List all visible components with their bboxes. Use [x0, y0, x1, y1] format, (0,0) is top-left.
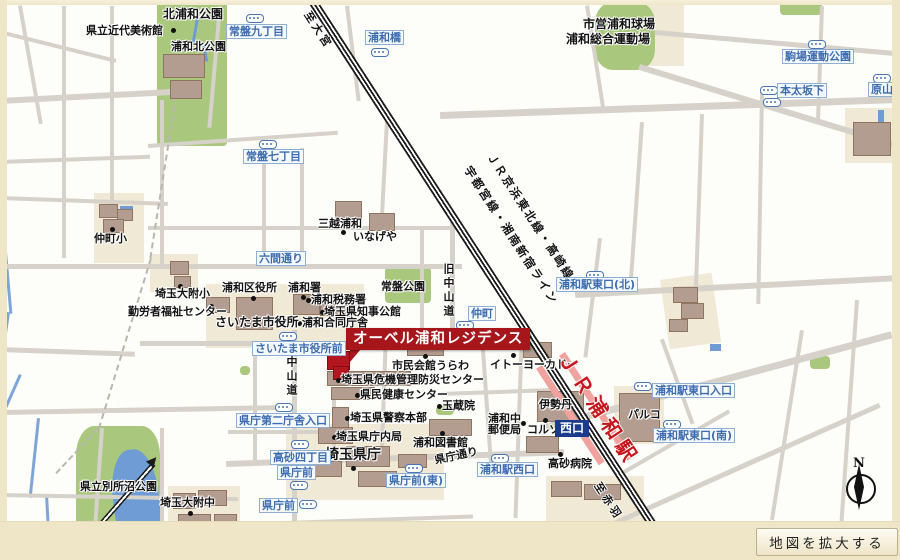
- bus-stop-icon: [275, 403, 293, 412]
- road-segment: [253, 344, 257, 462]
- place-label: 埼玉大附中: [160, 497, 215, 509]
- place-label: 高砂病院: [548, 458, 592, 470]
- bus-stop-icon: [634, 382, 652, 391]
- bus-stop-label: 常盤七丁目: [243, 149, 304, 164]
- bus-stop-icon: [259, 140, 277, 149]
- bus-stop-icon-dots: [293, 484, 295, 486]
- bus-stop-icon-dots: [637, 385, 639, 387]
- road-segment: [62, 6, 66, 258]
- bus-stop-icon: [291, 440, 309, 449]
- compass-icon: N: [840, 456, 880, 518]
- bus-stop-label: 浦和橋: [365, 30, 404, 45]
- building: [669, 319, 688, 332]
- bus-stop-label: 浦和駅東口(北): [556, 277, 638, 292]
- building: [681, 303, 704, 319]
- bus-stop-icon-dots: [302, 503, 304, 505]
- park-area: [240, 366, 250, 375]
- place-label: 常盤公園: [381, 281, 425, 293]
- road-segment: [655, 30, 900, 56]
- bus-stop-icon-dots: [811, 43, 813, 45]
- bus-stop-icon: [405, 464, 423, 473]
- place-label: 玉蔵院: [442, 400, 475, 412]
- road-segment: [583, 238, 602, 358]
- place-label: 三越浦和: [318, 218, 362, 230]
- bus-stop-icon: [371, 48, 389, 57]
- bus-stop-icon: [299, 500, 317, 509]
- bus-stop-icon: [763, 98, 781, 107]
- place-label: いなげや: [353, 231, 397, 243]
- road-name-label: 中山道: [283, 356, 299, 398]
- place-label: 仲町小: [94, 233, 127, 245]
- road-segment: [816, 6, 824, 124]
- bus-stop-label: さいたま市役所前: [252, 341, 346, 356]
- place-label: 浦和区役所: [222, 282, 277, 294]
- road-segment: [660, 339, 695, 425]
- river-line: [29, 418, 40, 498]
- water-area: [710, 344, 721, 351]
- bus-stop-icon-dots: [278, 406, 280, 408]
- poi-dot: [251, 296, 256, 301]
- place-label: 伊勢丹: [539, 399, 572, 411]
- bus-stop-icon-dots: [459, 324, 461, 326]
- map-canvas: ＪＲ京浜東北線・高崎線・ 宇都宮線・湘南新宿ライン ＪＲ浦和駅 西口 オーベル浦…: [0, 0, 900, 560]
- road-segment: [0, 155, 150, 164]
- building: [853, 122, 891, 156]
- place-label: 市営浦和球場: [583, 18, 655, 31]
- place-label: パルコ: [628, 409, 661, 421]
- place-label: 埼玉県庁内局: [336, 431, 402, 443]
- building: [673, 287, 698, 303]
- place-label: 郵便局: [488, 424, 521, 436]
- bus-stop-label: 浦和駅東口(南): [653, 428, 735, 443]
- place-label: 浦和合同庁舎: [302, 317, 368, 329]
- place-label: 浦和総合運動場: [566, 33, 650, 46]
- bus-stop-icon-dots: [408, 467, 410, 469]
- bus-stop-label: 浦和駅東口入口: [652, 383, 735, 398]
- place-label: 浦和署: [288, 282, 321, 294]
- bus-stop-icon-dots: [589, 274, 591, 276]
- frame-left: [0, 0, 7, 560]
- building: [170, 80, 202, 99]
- road-segment: [440, 388, 550, 396]
- road-segment: [440, 96, 900, 119]
- bus-stop-icon-dots: [766, 101, 768, 103]
- bus-stop-label: 県庁前: [277, 465, 316, 480]
- building: [170, 261, 189, 275]
- bus-stop-icon: [246, 14, 264, 23]
- building: [551, 481, 582, 497]
- poi-dot: [521, 421, 526, 426]
- place-label: 浦和北公園: [171, 41, 226, 53]
- bus-stop-icon-dots: [494, 457, 496, 459]
- bus-stop-label: 常盤九丁目: [226, 24, 287, 39]
- poi-dot: [171, 28, 176, 33]
- place-label: 埼玉県庁: [325, 448, 381, 463]
- bus-stop-label: 県庁前: [259, 498, 298, 513]
- road-segment: [262, 148, 266, 266]
- bus-stop-icon-dots: [294, 443, 296, 445]
- west-exit-label: 西口: [555, 420, 589, 437]
- compass-needle-south: [854, 487, 864, 510]
- subject-property-label: オーベル浦和レジデンス: [346, 328, 530, 350]
- enlarge-map-button[interactable]: 地図を拡大する: [756, 528, 898, 556]
- road-segment: [379, 120, 389, 228]
- place-label: さいたま市役所: [215, 316, 299, 329]
- bus-stop-label: 駒場運動公園: [782, 49, 854, 64]
- bus-stop-label: 高砂四丁目: [270, 450, 331, 465]
- place-label: 県民健康センター: [360, 389, 448, 401]
- bus-stop-label: 六間通り: [256, 251, 306, 266]
- bus-stop-label: 仲町: [468, 306, 496, 321]
- road-segment: [0, 347, 135, 357]
- place-label: 埼玉大附小: [155, 288, 210, 300]
- road-segment: [628, 122, 644, 290]
- bus-stop-icon-dots: [763, 89, 765, 91]
- bus-stop-icon-dots: [282, 335, 284, 337]
- poi-dot: [188, 511, 193, 516]
- bus-stop-icon: [808, 40, 826, 49]
- building: [429, 419, 472, 436]
- bus-stop-icon-dots: [374, 51, 376, 53]
- bus-stop-icon: [279, 332, 297, 341]
- bus-stop-icon-dots: [876, 77, 878, 79]
- road-segment: [694, 114, 704, 292]
- poi-dot: [341, 230, 346, 235]
- bus-stop-icon-dots: [262, 143, 264, 145]
- road-name-label: 旧中山道: [440, 263, 456, 319]
- compass-needle-north: [854, 464, 864, 487]
- bus-stop-label: 県庁前(東): [386, 473, 446, 488]
- building: [526, 436, 559, 453]
- road-segment: [18, 5, 43, 124]
- road-segment: [480, 336, 493, 464]
- building: [99, 204, 118, 218]
- place-label: 市民会館うらわ: [392, 360, 469, 372]
- building: [163, 54, 205, 78]
- place-label: 浦和税務署: [311, 294, 366, 306]
- bus-stop-label: 浦和駅西口: [477, 462, 538, 477]
- bus-stop-icon-dots: [666, 423, 668, 425]
- place-label: 県立別所沼公園: [80, 481, 157, 493]
- subject-callout-pointer: [350, 349, 361, 362]
- bus-stop-icon: [760, 86, 778, 95]
- place-label: 県立近代美術館: [86, 25, 163, 37]
- road-segment: [756, 92, 764, 304]
- road-segment: [148, 226, 460, 230]
- map-widget: ＪＲ京浜東北線・高崎線・ 宇都宮線・湘南新宿ライン ＪＲ浦和駅 西口 オーベル浦…: [0, 0, 900, 560]
- road-segment: [0, 264, 462, 269]
- frame-top: [0, 0, 900, 5]
- poi-dot: [351, 466, 356, 471]
- building: [369, 213, 395, 231]
- place-label: 勤労者福祉センター: [128, 306, 227, 318]
- road-segment: [300, 148, 304, 266]
- frame-right: [892, 0, 900, 560]
- place-label: 埼玉県警察本部: [350, 412, 427, 424]
- bus-stop-label: 本太坂下: [777, 83, 827, 98]
- place-label: 埼玉県危機管理防災センター: [341, 374, 484, 386]
- bus-stop-icon: [290, 481, 308, 490]
- bus-stop-icon-dots: [249, 17, 251, 19]
- bus-stop-label: 県庁第二庁舎入口: [236, 413, 330, 428]
- place-label: 北浦和公園: [163, 8, 223, 21]
